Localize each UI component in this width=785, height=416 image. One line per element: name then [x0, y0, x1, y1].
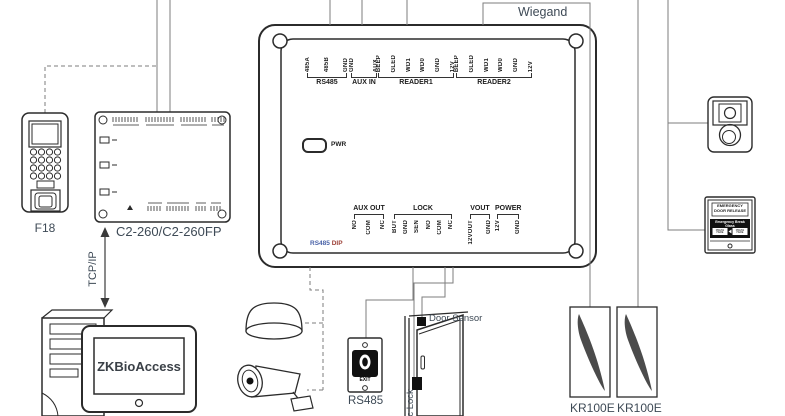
c2260-board [95, 112, 230, 222]
press-here-right: PRESS HERE [733, 230, 748, 236]
terminal-group-aux-in: GNDAUXAUX IN [349, 38, 379, 87]
terminal-group-name: RS485 [305, 79, 349, 87]
kr100e-label-right: KR100E [617, 401, 657, 415]
terminal-pin-gled: GLED [391, 55, 397, 72]
terminal-pin-but: BUT [392, 220, 398, 233]
kr100e-reader-right [617, 307, 657, 397]
group-bracket [354, 214, 384, 219]
terminal-group-reader2: BEEPGLEDWD1WD0GND12VREADER2 [454, 38, 534, 87]
terminal-pin-12v: 12V [528, 61, 534, 72]
terminal-pin-485a: 485A [305, 57, 311, 72]
terminal-pin-12v: 12V [495, 220, 501, 231]
group-bracket [456, 73, 532, 78]
terminal-pin-wd0: WD0 [498, 58, 504, 72]
terminal-pin-gnd: GND [486, 220, 492, 234]
group-bracket [394, 214, 452, 219]
c2260-label: C2-260/C2-260FP [116, 224, 222, 239]
press-here-left: PRESS HERE [713, 230, 728, 236]
emergency-sign: EMERGENCY DOOR RELEASE [712, 204, 748, 213]
terminal-pin-12vout: 12VOUT [468, 220, 474, 245]
terminal-pin-com: COM [437, 220, 443, 235]
group-bracket [497, 214, 519, 219]
exit-label: EXIT [352, 378, 378, 384]
terminal-pin-gnd: GND [513, 58, 519, 72]
terminal-group-rs485: 485A485BGNDRS485 [305, 38, 349, 87]
terminal-pin-beep: BEEP [454, 55, 460, 72]
screw-icon [569, 34, 583, 48]
kr100e-label-left: KR100E [570, 401, 610, 415]
terminal-group-name: LOCK [392, 205, 454, 213]
kr100e-reader-left [570, 307, 610, 397]
terminal-group-reader1: BEEPGLEDWD1WD0GND12VREADER1 [376, 38, 456, 87]
hand-icon [362, 358, 368, 367]
rs485-dip-label: RS485 DIP [310, 240, 343, 247]
terminal-pin-gnd: GND [435, 58, 441, 72]
door-sensor-label: Door Sensor [429, 313, 482, 324]
emergency-band-label: Emergency Break Glass [710, 220, 750, 228]
terminal-pin-gnd: GND [515, 220, 521, 234]
rs485-dip-red: DIP [332, 240, 343, 247]
terminal-pin-nc: NC [448, 220, 454, 229]
terminal-group-name: READER1 [376, 79, 456, 87]
group-bracket [470, 214, 490, 219]
terminal-group-lock: LOCKBUTGNDSENNOCOMNC [392, 205, 454, 252]
exit-button-device [348, 338, 382, 392]
screw-icon [569, 244, 583, 258]
magnetic-lock-label: ic Lock [405, 388, 417, 416]
terminal-pin-nc: NC [380, 220, 386, 229]
zkbioaccess-label: ZKBioAccess [94, 338, 184, 394]
terminal-pin-no: NO [426, 220, 432, 229]
terminal-group-name: POWER [495, 205, 521, 213]
terminal-pin-gnd: GND [349, 58, 355, 72]
terminal-pin-485b: 485B [324, 57, 330, 72]
group-bracket [307, 73, 347, 78]
pwr-label: PWR [331, 141, 346, 148]
f18-label: F18 [22, 221, 68, 235]
terminal-group-vout: VOUT12VOUTGND [468, 205, 492, 252]
screw-icon [273, 34, 287, 48]
tcpip-arrow-icon [101, 227, 110, 308]
wiring-diagram: Wiegand TCP/IP F18 C2-260/C2-260FP ZKBio… [0, 0, 785, 416]
terminal-pin-com: COM [366, 220, 372, 235]
group-bracket [351, 73, 377, 78]
terminal-pin-wd0: WD0 [420, 58, 426, 72]
wiegand-label: Wiegand [518, 5, 567, 19]
terminal-pin-wd1: WD1 [484, 58, 490, 72]
terminal-pin-beep: BEEP [376, 55, 382, 72]
tcpip-label: TCP/IP [86, 245, 100, 293]
terminal-group-name: AUX OUT [352, 205, 386, 213]
terminal-group-aux-out: AUX OUTNOCOMNC [352, 205, 386, 252]
rs485-dip-blue: RS485 [310, 240, 330, 247]
cctv-camera-icon [234, 363, 313, 411]
door-panel [417, 315, 463, 416]
siren [246, 303, 302, 339]
exit-button-bus-label: RS485 [348, 395, 382, 407]
terminal-group-name: VOUT [468, 205, 492, 213]
terminal-pin-no: NO [352, 220, 358, 229]
f18-device [22, 113, 68, 212]
doorbell-device [708, 97, 752, 152]
terminal-pin-wd1: WD1 [406, 58, 412, 72]
screw-icon [273, 244, 287, 258]
terminal-pin-gnd: GND [403, 220, 409, 234]
emergency-line2: DOOR RELEASE [712, 209, 748, 214]
terminal-pin-sen: SEN [414, 220, 420, 233]
door-sensor-icon [417, 317, 426, 326]
terminal-group-name: READER2 [454, 79, 534, 87]
terminal-group-name: AUX IN [349, 79, 379, 87]
f18-dashed-wire [45, 66, 157, 113]
terminal-group-power: POWER12VGND [495, 205, 521, 252]
group-bracket [378, 73, 454, 78]
terminal-pin-gled: GLED [469, 55, 475, 72]
